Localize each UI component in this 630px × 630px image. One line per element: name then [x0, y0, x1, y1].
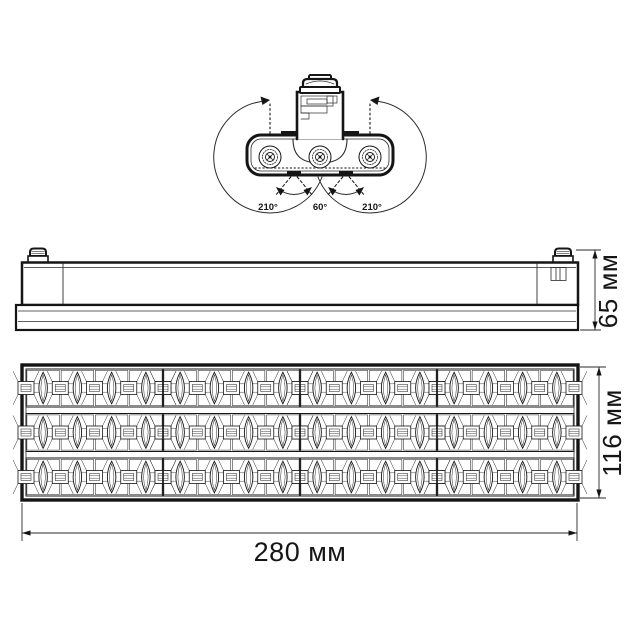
led-window-icon: [463, 471, 479, 484]
pivot-screw-icon: [259, 146, 281, 168]
front-view: 116 мм 280 мм: [13, 365, 627, 567]
led-window-icon: [566, 382, 582, 395]
led-window-icon: [361, 426, 377, 439]
led-window-icon: [87, 426, 103, 439]
led-window-icon: [121, 382, 137, 395]
led-window-icon: [326, 426, 342, 439]
angle-label-center: 60°: [313, 202, 328, 213]
led-window-icon: [258, 471, 274, 484]
led-window-icon: [395, 471, 411, 484]
led-window-icon: [189, 426, 205, 439]
led-window-icon: [498, 471, 514, 484]
led-window-icon: [326, 382, 342, 395]
led-window-icon: [258, 426, 274, 439]
led-window-icon: [87, 471, 103, 484]
side-view: 65 мм: [16, 249, 623, 331]
side-view-housing: [22, 263, 578, 306]
adapter-cap: [300, 75, 340, 93]
led-window-icon: [361, 382, 377, 395]
mount-knob-left-icon: [28, 249, 48, 263]
luminaire-drawing: 210° 60° 210°: [0, 0, 630, 630]
led-window-icon: [189, 471, 205, 484]
led-window-icon: [532, 382, 548, 395]
dimension-width-280: [22, 503, 577, 541]
led-window-icon: [395, 426, 411, 439]
led-window-icon: [224, 426, 240, 439]
led-window-icon: [121, 471, 137, 484]
led-window-icon: [52, 426, 68, 439]
led-window-icon: [566, 471, 582, 484]
led-window-icon: [18, 471, 34, 484]
led-window-icon: [395, 382, 411, 395]
led-window-icon: [121, 426, 137, 439]
led-window-icon: [326, 471, 342, 484]
led-optics-grid: [13, 369, 587, 496]
led-window-icon: [258, 382, 274, 395]
angle-label-right: 210°: [362, 202, 382, 213]
angle-label-left: 210°: [258, 202, 278, 213]
led-window-icon: [566, 426, 582, 439]
pivot-screw-icon: [309, 146, 331, 168]
led-window-icon: [224, 382, 240, 395]
led-window-icon: [361, 471, 377, 484]
dimension-label-116mm: 116 мм: [597, 389, 627, 476]
technical-drawing-page: 210° 60° 210°: [0, 0, 630, 630]
led-window-icon: [189, 382, 205, 395]
led-window-icon: [532, 426, 548, 439]
led-window-icon: [498, 382, 514, 395]
led-window-icon: [224, 471, 240, 484]
dimension-label-280mm: 280 мм: [254, 537, 347, 567]
led-window-icon: [18, 426, 34, 439]
side-view-lens-section: [16, 305, 578, 330]
led-window-icon: [532, 471, 548, 484]
led-window-icon: [52, 471, 68, 484]
dimension-label-65mm: 65 мм: [593, 254, 623, 328]
led-window-icon: [463, 382, 479, 395]
pivot-screw-icon: [359, 146, 381, 168]
rotation-view-diagram: 210° 60° 210°: [214, 75, 427, 213]
led-window-icon: [463, 426, 479, 439]
pivot-screws: [259, 146, 381, 168]
mount-knob-right-icon: [553, 249, 573, 263]
led-window-icon: [87, 382, 103, 395]
led-window-icon: [52, 382, 68, 395]
led-window-icon: [18, 382, 34, 395]
led-window-icon: [498, 426, 514, 439]
